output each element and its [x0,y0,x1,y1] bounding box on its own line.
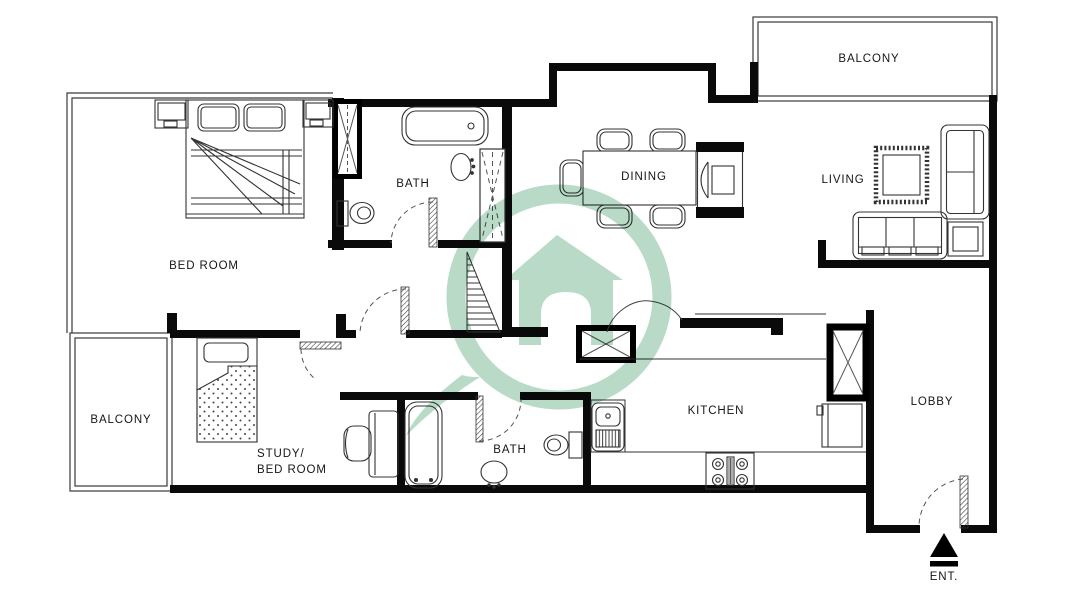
room-label-study: STUDY/ BED ROOM [257,447,327,478]
desk-chair [344,426,371,461]
bathtub [402,107,488,145]
floor-plan-drawing [0,0,1066,600]
room-label-study-line2: BED ROOM [257,463,327,479]
room-label-bath-bottom: BATH [493,444,526,456]
bath-bottom-door-leaf [476,396,483,442]
room-label-balcony-top: BALCONY [838,53,899,65]
double-bed [186,100,304,218]
desk [369,411,398,477]
room-label-dining: DINING [621,171,667,183]
room-label-balcony-left: BALCONY [90,414,151,426]
nightstand [155,100,188,128]
wash-basin [451,154,471,181]
corner-hatch-triangle [467,252,500,332]
bath-bottom-door-arc [479,399,521,441]
study-door-leaf [300,342,341,349]
study-door-arc [301,349,315,379]
blanket [197,366,257,442]
bedroom-door-arc [360,289,406,333]
bath-top-door-arc [391,202,433,243]
bedroom-furniture [155,100,333,218]
room-label-kitchen: KITCHEN [688,405,745,417]
bath-top-closet-left [336,102,360,177]
pillow [244,104,285,131]
floorplan-page: BED ROOM BATH DINING LIVING BALCONY BALC… [0,0,1066,600]
pillow [198,104,239,131]
living-furniture [853,125,989,259]
bedroom-door-leaf [401,287,409,334]
room-label-study-line1: STUDY/ [257,447,327,463]
pillow [204,343,248,362]
rug [876,148,927,202]
blanket-fold [191,138,300,214]
bath-top-door-leaf [429,198,437,247]
entry-door-arc [919,479,963,527]
sofa-horizontal [853,212,947,259]
room-label-living: LIVING [821,174,864,186]
entrance-label: ENT. [930,571,959,583]
room-label-bedroom: BED ROOM [169,260,239,272]
room-label-bath-top: BATH [396,178,429,190]
lobby-shaft [830,327,866,398]
balcony-left-rail [70,333,172,491]
tv-unit-wall [696,142,744,152]
entrance-marker [930,533,958,567]
tv-icon [701,162,708,198]
entry-arrow-icon [930,533,958,557]
entry-door-leaf [960,476,968,528]
wash-basin [481,461,507,483]
room-label-lobby: LOBBY [911,396,954,408]
